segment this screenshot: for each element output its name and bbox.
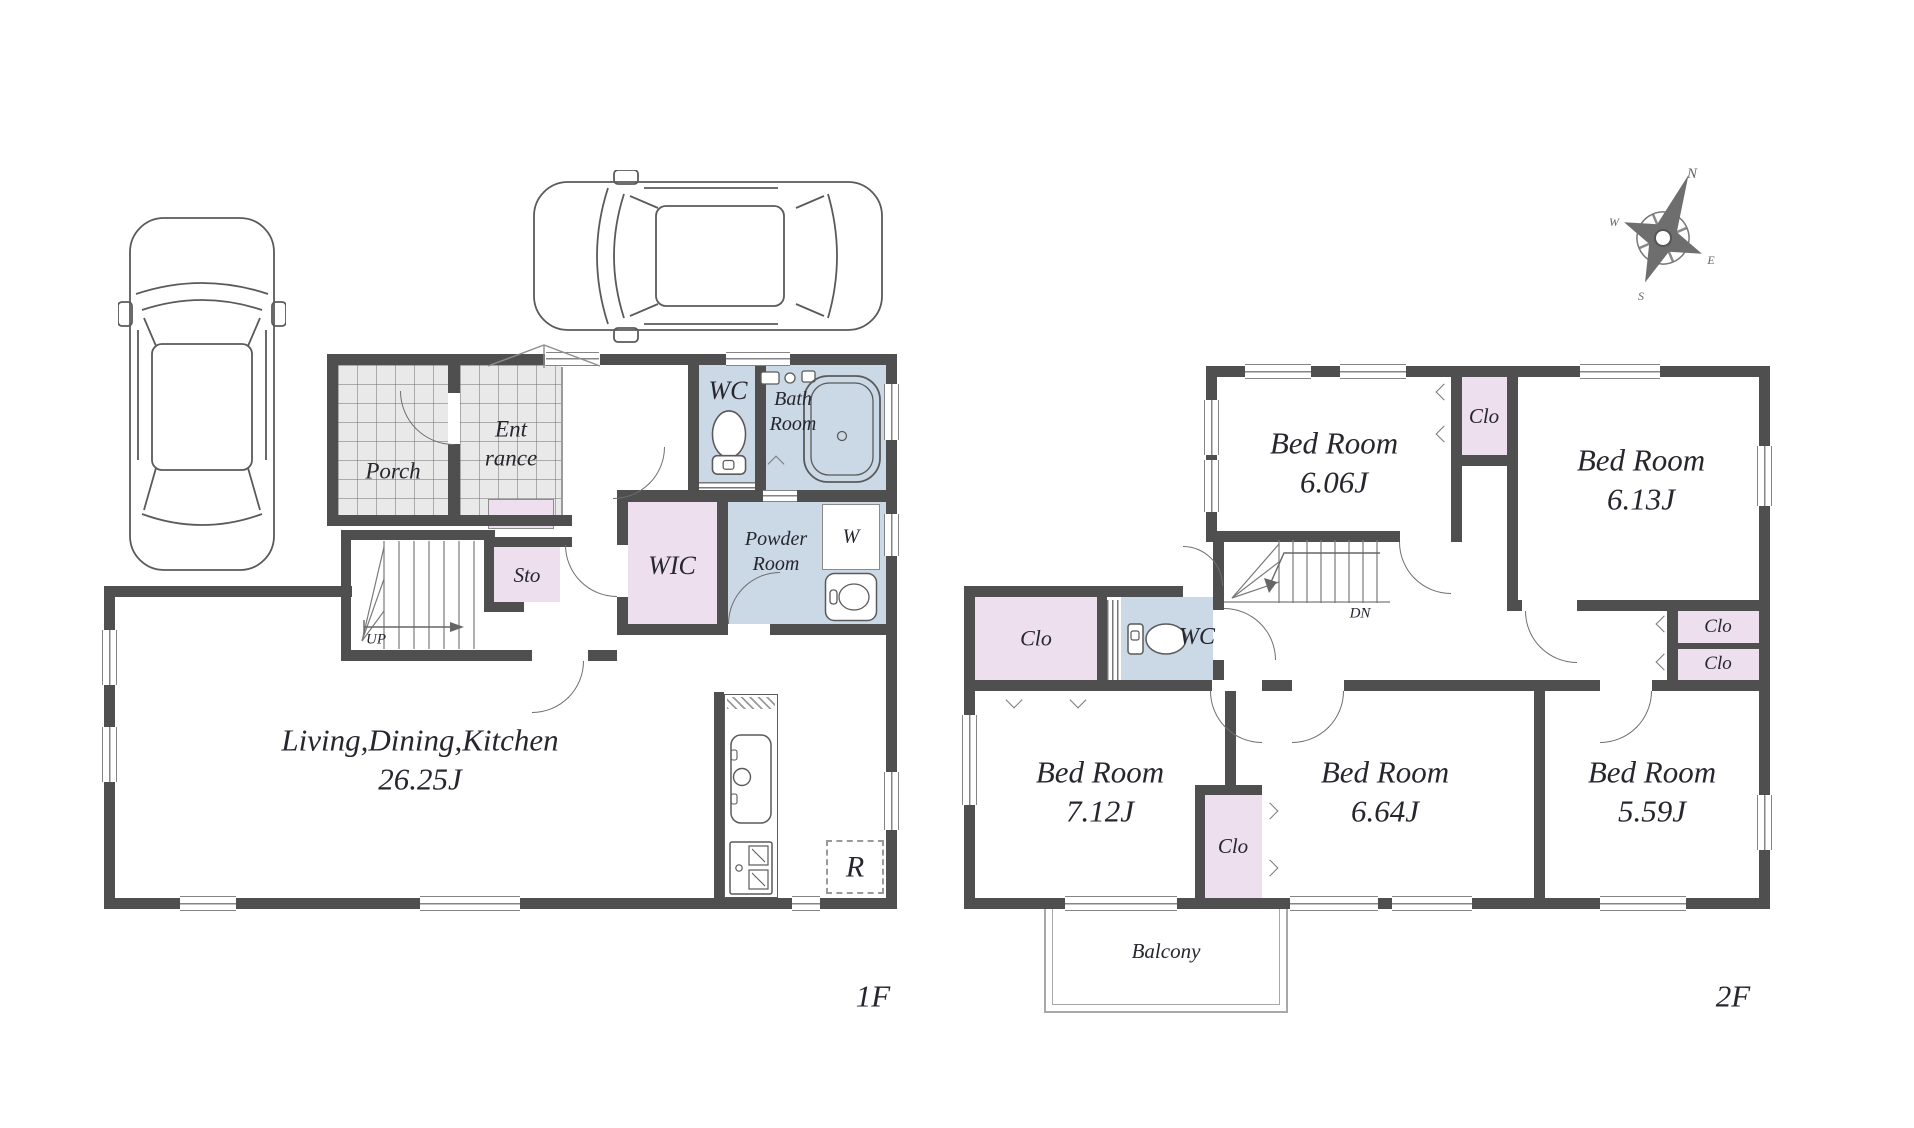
balcony-label: Balcony [1132, 938, 1201, 964]
wall [588, 650, 617, 661]
stairs-down-label: DN [1350, 605, 1371, 624]
window [1757, 795, 1772, 850]
stairs-down-icon [1224, 540, 1390, 603]
wall [1652, 680, 1770, 691]
closet-label: Clo [1704, 652, 1731, 676]
window [180, 896, 236, 911]
wall [1451, 366, 1462, 542]
bedroom-5-59j-label: Bed Room 5.59J [1588, 753, 1716, 831]
window [1204, 460, 1219, 512]
compass-north-label: N [1686, 166, 1698, 182]
wall [341, 530, 495, 540]
canopy-icon [486, 340, 602, 368]
closet-label: Clo [1704, 615, 1731, 639]
window [1600, 896, 1686, 911]
wall [104, 586, 352, 597]
room-label-wc-2f: WC [1179, 622, 1215, 652]
wall [484, 650, 532, 661]
refrigerator-label: R [846, 848, 864, 886]
stairs-up-label: UP [366, 631, 386, 650]
compass-icon: N E S W [1588, 158, 1738, 308]
wall [617, 502, 628, 545]
window [1757, 446, 1772, 506]
room-label-entrance: Ent rance [485, 415, 537, 473]
window [1290, 896, 1378, 911]
room-label-storage: Sto [514, 562, 541, 588]
wc-threshold-2f [1107, 600, 1121, 680]
room-label-bath: Bath Room [770, 387, 817, 437]
wall [1195, 785, 1262, 795]
floor-label-2f: 2F [1716, 978, 1750, 1017]
wall [964, 586, 1183, 597]
window [1580, 364, 1660, 379]
room-label-powder: Powder Room [745, 527, 807, 577]
wall [1344, 680, 1600, 691]
window [726, 352, 790, 366]
counter-hatch [727, 697, 775, 709]
wall [688, 365, 699, 496]
wall [770, 624, 897, 635]
floor-plan: Porch Ent rance WC Bath Room Sto WIC Pow… [0, 0, 1914, 1128]
bedroom-6-64j-label: Bed Room 6.64J [1321, 753, 1449, 831]
window [1392, 896, 1472, 911]
window [792, 896, 820, 911]
wall [1213, 660, 1224, 680]
wall [484, 602, 524, 612]
window [1340, 364, 1406, 379]
wall [617, 624, 728, 635]
wall [1195, 785, 1205, 898]
window [884, 772, 899, 830]
bath-sliding-door [763, 490, 797, 502]
compass-west-label: W [1609, 215, 1620, 229]
wall [1097, 597, 1107, 680]
closet-label: Clo [1218, 833, 1248, 859]
bedroom-6-13j-label: Bed Room 6.13J [1577, 441, 1705, 519]
toilet-icon [705, 408, 753, 480]
wall [484, 537, 572, 547]
window [962, 715, 977, 805]
window [420, 896, 520, 911]
room-label-wc: WC [709, 375, 748, 408]
washbasin-icon [824, 572, 878, 622]
wall [1451, 455, 1518, 466]
closet-label: Clo [1469, 403, 1499, 429]
wall [714, 692, 724, 898]
bedroom-6-06j-label: Bed Room 6.06J [1270, 424, 1398, 502]
wall [1667, 600, 1678, 691]
wall [1262, 680, 1292, 691]
closet-label: Clo [1020, 624, 1052, 652]
window [102, 630, 117, 685]
window [884, 384, 899, 440]
wall [964, 680, 1212, 691]
wall [717, 502, 728, 635]
window [884, 514, 899, 556]
room-label-wic: WIC [648, 550, 696, 583]
window [1204, 400, 1219, 455]
wall [1507, 600, 1522, 611]
wall [1534, 691, 1545, 898]
wall [341, 650, 495, 661]
kitchen-sink-icon [728, 730, 774, 828]
wall [448, 365, 460, 393]
wall [1213, 597, 1224, 610]
stove-icon [728, 840, 774, 896]
bedroom-7-12j-label: Bed Room 7.12J [1036, 753, 1164, 831]
wall [327, 354, 338, 526]
room-label-porch: Porch [365, 458, 420, 487]
entrance-step-line [561, 367, 563, 515]
window [102, 727, 117, 782]
room-label-ldk: Living,Dining,Kitchen 26.25J [281, 721, 558, 799]
wall [1678, 643, 1759, 649]
room-label-washer: W [843, 525, 860, 550]
wall [448, 444, 460, 526]
compass-east-label: E [1706, 253, 1715, 267]
window [1245, 364, 1311, 379]
floor-label-1f: 1F [856, 978, 890, 1017]
wall [797, 490, 897, 502]
car-icon [528, 170, 888, 344]
compass-south-label: S [1638, 289, 1644, 303]
wall [1507, 366, 1518, 611]
car-icon [118, 210, 286, 580]
